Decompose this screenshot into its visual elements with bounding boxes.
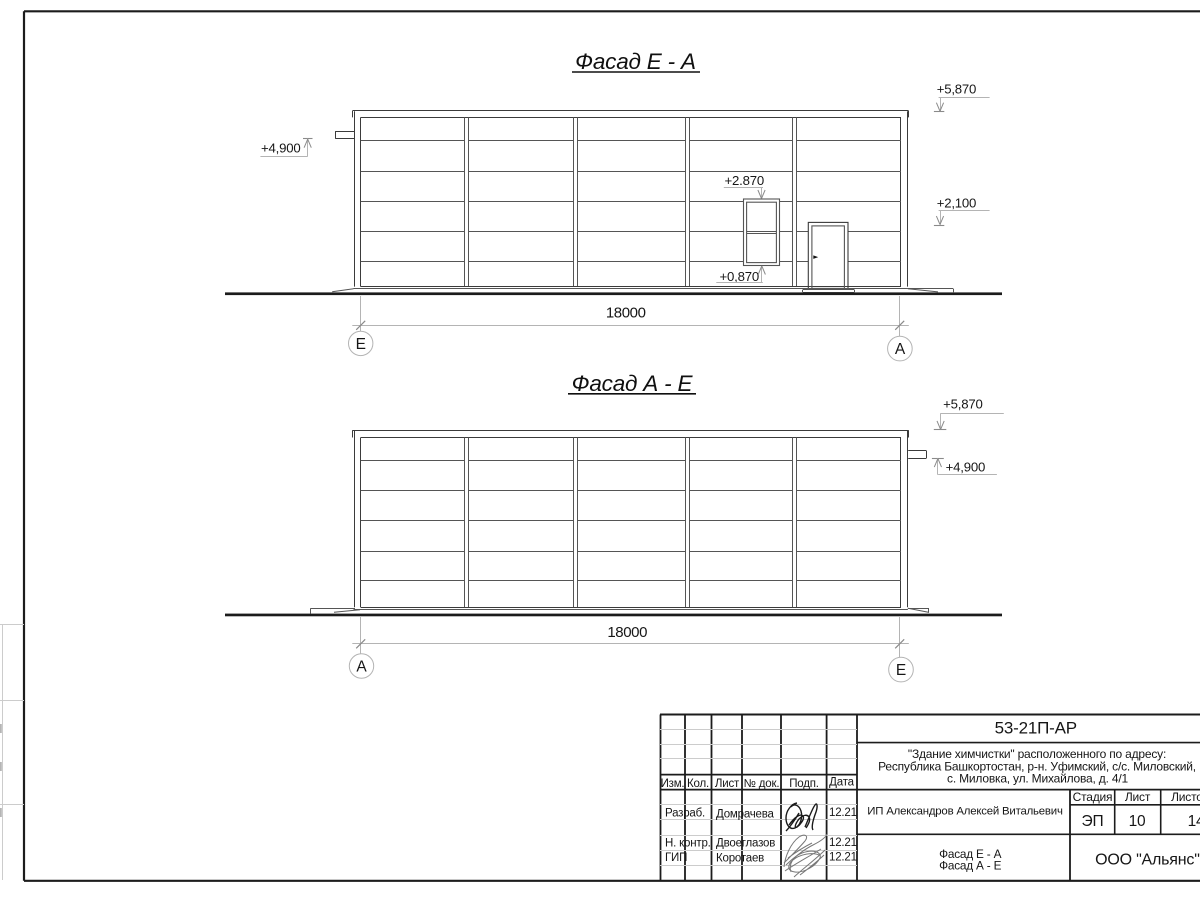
svg-text:+4,900: +4,900	[261, 140, 301, 155]
svg-text:+5,870: +5,870	[943, 397, 983, 412]
svg-text:10: 10	[1129, 813, 1146, 830]
svg-text:14: 14	[1188, 813, 1200, 830]
svg-text:+2,100: +2,100	[937, 196, 977, 211]
svg-text:Фасад А - Е: Фасад А - Е	[572, 371, 694, 396]
svg-text:ООО "Альянс": ООО "Альянс"	[1095, 851, 1200, 868]
svg-text:+4,900: +4,900	[946, 459, 986, 474]
svg-text:Коротаев: Коротаев	[716, 853, 764, 865]
svg-text:А: А	[356, 659, 367, 676]
svg-text:Двоеглазов: Двоеглазов	[716, 838, 775, 850]
svg-text:ЭП: ЭП	[1082, 813, 1104, 830]
svg-text:12.21: 12.21	[829, 807, 857, 819]
svg-text:Лист: Лист	[1125, 790, 1151, 804]
svg-text:Дата: Дата	[829, 777, 854, 789]
svg-text:Фасад А - Е: Фасад А - Е	[939, 859, 1002, 873]
svg-text:12.21: 12.21	[829, 837, 857, 849]
svg-text:с. Миловка, ул. Михайлова, д.: с. Миловка, ул. Михайлова, д. 4/1	[947, 771, 1128, 785]
svg-text:Изм.: Изм.	[661, 778, 685, 790]
svg-text:Кол.: Кол.	[687, 778, 709, 790]
svg-text:12.21: 12.21	[829, 852, 857, 864]
svg-text:18000: 18000	[606, 304, 646, 321]
svg-text:18000: 18000	[607, 624, 647, 641]
svg-text:Е: Е	[356, 336, 366, 353]
svg-text:Стадия: Стадия	[1073, 790, 1113, 804]
svg-text:А: А	[895, 341, 906, 358]
svg-text:Фасад Е - А: Фасад Е - А	[575, 49, 696, 74]
svg-text:Лист: Лист	[715, 778, 740, 790]
svg-text:ИП Александров Алексей Виталье: ИП Александров Алексей Витальевич	[867, 806, 1063, 818]
svg-text:53-21П-АР: 53-21П-АР	[995, 719, 1077, 738]
svg-text:ГИП: ГИП	[665, 852, 687, 864]
svg-text:Е: Е	[896, 662, 906, 679]
svg-text:Н. контр.: Н. контр.	[665, 838, 711, 850]
svg-text:+0,870: +0,870	[720, 269, 760, 284]
svg-text:№ док.: № док.	[744, 778, 780, 790]
svg-text:Домрачева: Домрачева	[716, 809, 775, 821]
svg-text:Подп.: Подп.	[789, 778, 819, 790]
svg-text:Листов: Листов	[1171, 790, 1200, 804]
svg-text:+5,870: +5,870	[937, 82, 977, 97]
svg-text:+2.870: +2.870	[725, 173, 765, 188]
svg-text:Разраб.: Разраб.	[665, 808, 705, 820]
